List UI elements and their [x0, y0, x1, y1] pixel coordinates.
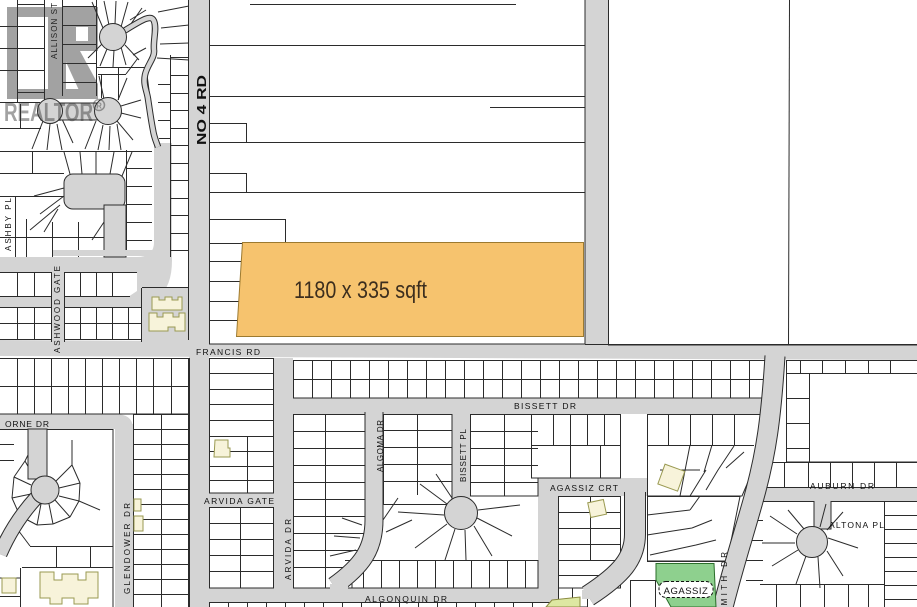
svg-text:AUBURN DR: AUBURN DR	[810, 481, 874, 491]
svg-text:BISSETT DR: BISSETT DR	[514, 401, 576, 411]
svg-text:REALTOR: REALTOR	[4, 97, 93, 127]
svg-text:BISSETT PL: BISSETT PL	[459, 428, 468, 482]
svg-text:ALTONA PL: ALTONA PL	[829, 520, 884, 530]
svg-text:ALGOMA DR: ALGOMA DR	[376, 420, 385, 472]
svg-text:NO 4 RD: NO 4 RD	[194, 75, 209, 145]
svg-text:ARVIDA GATE: ARVIDA GATE	[204, 496, 274, 506]
svg-text:FRANCIS RD: FRANCIS RD	[196, 347, 260, 357]
svg-text:ORNE DR: ORNE DR	[5, 419, 49, 429]
svg-text:AGASSIZ: AGASSIZ	[664, 586, 709, 597]
svg-text:ARVIDA DR: ARVIDA DR	[284, 519, 293, 580]
svg-text:R: R	[96, 102, 102, 111]
svg-text:1180 x 335 sqft: 1180 x 335 sqft	[294, 277, 427, 304]
svg-text:ASHBY PL: ASHBY PL	[4, 197, 13, 251]
